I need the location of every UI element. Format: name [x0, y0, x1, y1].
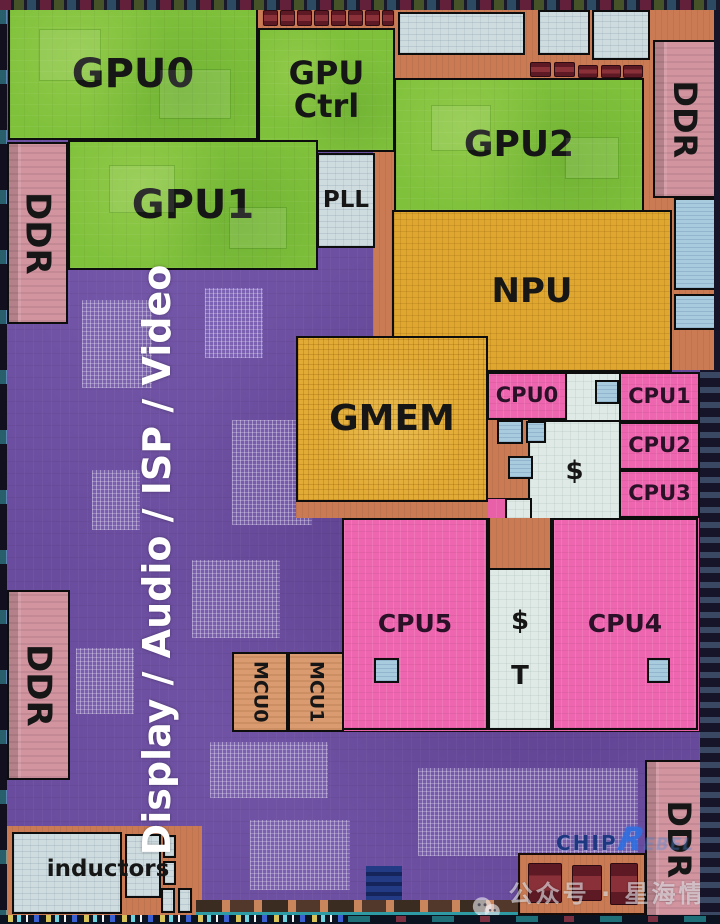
- bottom-pad-dots: [8, 915, 348, 922]
- sram-macro: [508, 456, 533, 479]
- gmem-label: GMEM: [329, 401, 455, 438]
- ddr-top-right-label: DDR: [668, 80, 701, 158]
- block-ddr-top-left: DDR: [7, 142, 68, 324]
- io-box-right-b: [674, 294, 716, 330]
- block-inductor-s3: [161, 888, 175, 913]
- capacitor: [601, 65, 621, 78]
- chip-die-photo: GPU0 GPU Ctrl GPU1 GPU2 PLL NPU GMEM DDR…: [0, 0, 720, 924]
- pad-ring-left: [0, 10, 7, 924]
- pll-label: PLL: [323, 189, 369, 212]
- l2-cache-label: $: [565, 458, 583, 485]
- cpu1-label: CPU1: [628, 386, 690, 407]
- block-cpu4: CPU4: [552, 518, 698, 730]
- pad-ring-right-upper: [714, 10, 720, 370]
- block-l2-cache-tab: [505, 498, 532, 520]
- cpu5-label: CPU5: [378, 611, 452, 637]
- mcu0-label: MCU0: [250, 661, 269, 723]
- block-gpu0: GPU0: [8, 8, 258, 140]
- cpu0-label: CPU0: [496, 385, 558, 406]
- chip-vendor-watermark: CHIP R EBEL: [556, 820, 694, 858]
- block-gpu2: GPU2: [394, 78, 644, 212]
- capacitor: [365, 10, 380, 26]
- chip-logo-prefix: CHIP: [556, 831, 618, 855]
- block-gmem: GMEM: [296, 336, 488, 502]
- ddr-top-left-label: DDR: [20, 192, 55, 275]
- fabric-texture-patch: [76, 648, 134, 714]
- pad-ring-right-lower: [700, 370, 720, 918]
- cpu3-label: CPU3: [628, 483, 690, 504]
- fabric-texture-patch: [205, 288, 263, 358]
- block-mcu0: MCU0: [232, 652, 288, 732]
- capacitor: [348, 10, 363, 26]
- fabric-texture-patch: [192, 560, 280, 638]
- ddr-bottom-left-label: DDR: [21, 644, 56, 727]
- sram-macro: [374, 658, 399, 683]
- block-cpu1: CPU1: [619, 372, 700, 422]
- fabric-dark-block: [366, 866, 402, 902]
- capacitor: [331, 10, 346, 26]
- mcu1-label: MCU1: [306, 661, 325, 723]
- fabric-texture-patch: [92, 470, 140, 530]
- block-cpu3: CPU3: [619, 470, 700, 518]
- analog-gap-cpu45: [488, 518, 552, 570]
- cpu45-cache-dollar-label: $: [511, 608, 529, 635]
- capacitor: [554, 62, 575, 77]
- inductors-label-wrap: inductors: [28, 858, 188, 881]
- block-cpu2: CPU2: [619, 422, 700, 470]
- gpu-ctrl-label-line2: Ctrl: [289, 90, 365, 123]
- block-inductor-s4: [178, 888, 192, 913]
- block-cpu5: CPU5: [342, 518, 488, 730]
- npu-label: NPU: [492, 274, 573, 309]
- block-gpu1: GPU1: [68, 140, 318, 270]
- capacitor: [297, 10, 312, 26]
- io-box-top-a: [398, 12, 525, 55]
- chip-logo-suffix: EBEL: [643, 835, 694, 855]
- cpu45-cache-t-label: T: [511, 663, 529, 690]
- fabric-texture-patch: [210, 742, 328, 798]
- inductors-label: inductors: [47, 856, 170, 882]
- block-mcu1: MCU1: [288, 652, 344, 732]
- block-gpu-ctrl: GPU Ctrl: [258, 28, 395, 152]
- block-cpu45-cache: $ T: [488, 568, 552, 730]
- pad-ring-top: [0, 0, 720, 10]
- capacitor: [280, 10, 295, 26]
- sram-macro: [647, 658, 670, 683]
- gpu-ctrl-label-line1: GPU: [289, 57, 365, 90]
- cpu2-label: CPU2: [628, 435, 690, 456]
- block-ddr-top-right: DDR: [653, 40, 716, 198]
- capacitor: [314, 10, 329, 26]
- sram-macro: [497, 420, 523, 444]
- bottom-pad-teal: [348, 916, 720, 922]
- capacitor: [530, 62, 551, 77]
- sram-macro: [595, 380, 619, 404]
- io-box-right-a: [674, 198, 716, 290]
- capacitor: [578, 65, 598, 78]
- sram-macro: [526, 421, 546, 443]
- subsystem-overlay-label: Display / Audio / ISP / Video: [135, 265, 179, 856]
- cpu4-label: CPU4: [588, 611, 662, 637]
- analog-strip-under-gmem: [296, 500, 488, 518]
- capacitor: [263, 10, 278, 26]
- block-ddr-bottom-left: DDR: [7, 590, 70, 780]
- capacitor: [623, 65, 643, 78]
- fabric-texture-patch: [250, 820, 350, 890]
- capacitor: [382, 10, 394, 26]
- block-cpu0: CPU0: [487, 372, 567, 420]
- io-box-top-b: [538, 10, 590, 55]
- io-box-top-c: [592, 10, 650, 60]
- block-pll: PLL: [317, 153, 375, 248]
